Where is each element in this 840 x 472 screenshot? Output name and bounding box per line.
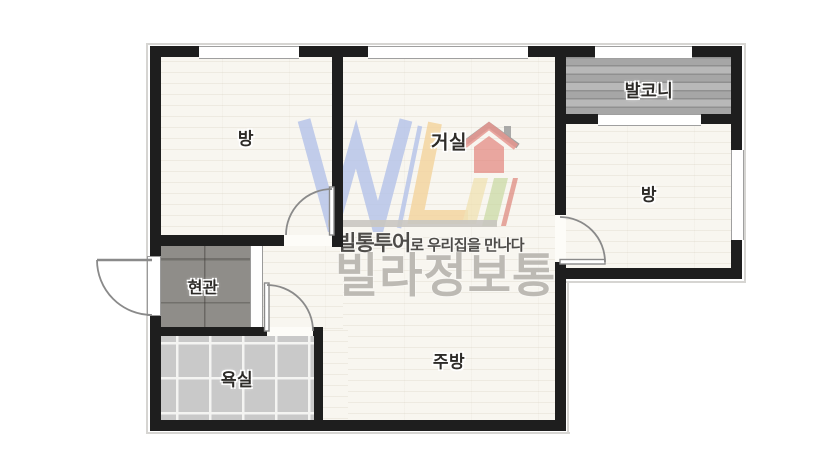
logo-w [304, 120, 420, 228]
wall-bottom [150, 420, 566, 431]
door-gap-entrance [147, 256, 161, 316]
window-balcony-bottom [598, 114, 701, 126]
label-bathroom: 욕실 [221, 366, 253, 391]
label-bedroom-right: 방 [641, 181, 657, 206]
trim-right-outer [744, 43, 746, 283]
entrance-threshold [250, 245, 263, 327]
trim-left [146, 43, 148, 434]
trim-step [566, 281, 746, 283]
wall-bedroom-living [332, 46, 343, 247]
door-gap-bedroom-right [555, 215, 566, 262]
logo-stripes [462, 178, 518, 226]
label-entrance: 현관 [188, 274, 218, 298]
label-kitchen: 주방 [433, 348, 465, 373]
floor-plan: 빌통투어로 우리집을 만나다 빌라정보통 [0, 0, 840, 472]
window-balcony-top [595, 46, 692, 59]
label-balcony: 발코니 [625, 77, 673, 102]
window-bedroom-right [731, 150, 744, 240]
entrance-door-icon [97, 260, 152, 315]
trim-right-main [567, 283, 569, 434]
watermark-brand: 빌라정보통 [335, 252, 556, 299]
logo-underline [328, 220, 497, 227]
brand-logo [296, 116, 522, 232]
trim-bottom [146, 432, 570, 434]
window-living [368, 46, 528, 59]
window-bedroom-left [199, 46, 299, 59]
wall-bedroom-right-bottom [555, 268, 742, 279]
hall-corridor-floor [258, 240, 343, 332]
trim-top [148, 43, 746, 45]
door-gap-bathroom [267, 327, 313, 336]
door-gap-bedroom-left [284, 235, 332, 246]
wall-bathroom-right [314, 327, 323, 431]
label-bedroom-left: 방 [238, 125, 254, 150]
label-living-room: 거실 [431, 128, 467, 155]
